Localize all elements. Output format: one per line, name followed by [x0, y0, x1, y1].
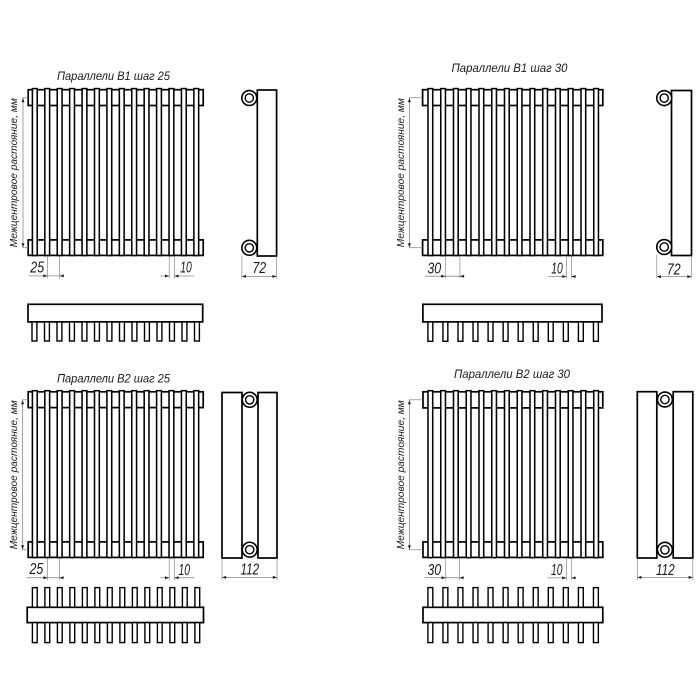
svg-text:Параллели В1 шаг 25: Параллели В1 шаг 25: [57, 69, 170, 83]
svg-text:25: 25: [29, 561, 44, 578]
svg-text:72: 72: [252, 260, 266, 277]
svg-text:10: 10: [178, 562, 190, 579]
svg-text:112: 112: [241, 561, 260, 578]
svg-text:112: 112: [656, 562, 675, 579]
svg-text:Параллели В2 шаг 25: Параллели В2 шаг 25: [57, 371, 170, 385]
svg-text:Межцентровое растояние, мм: Межцентровое растояние, мм: [9, 98, 20, 247]
svg-text:Параллели В1 шаг 30: Параллели В1 шаг 30: [452, 61, 568, 75]
svg-text:10: 10: [551, 260, 563, 277]
svg-text:10: 10: [551, 562, 563, 579]
svg-text:Межцентровое растояние, мм: Межцентровое растояние, мм: [9, 400, 20, 549]
svg-text:Параллели В2 шаг 30: Параллели В2 шаг 30: [454, 367, 570, 381]
svg-text:Межцентровое растояние, мм: Межцентровое растояние, мм: [396, 400, 407, 549]
svg-text:30: 30: [427, 261, 441, 278]
svg-text:30: 30: [427, 562, 441, 579]
svg-text:Межцентровое растояние, мм: Межцентровое растояние, мм: [396, 98, 407, 247]
svg-text:72: 72: [667, 262, 681, 279]
svg-text:10: 10: [180, 260, 192, 277]
svg-text:25: 25: [30, 259, 45, 276]
